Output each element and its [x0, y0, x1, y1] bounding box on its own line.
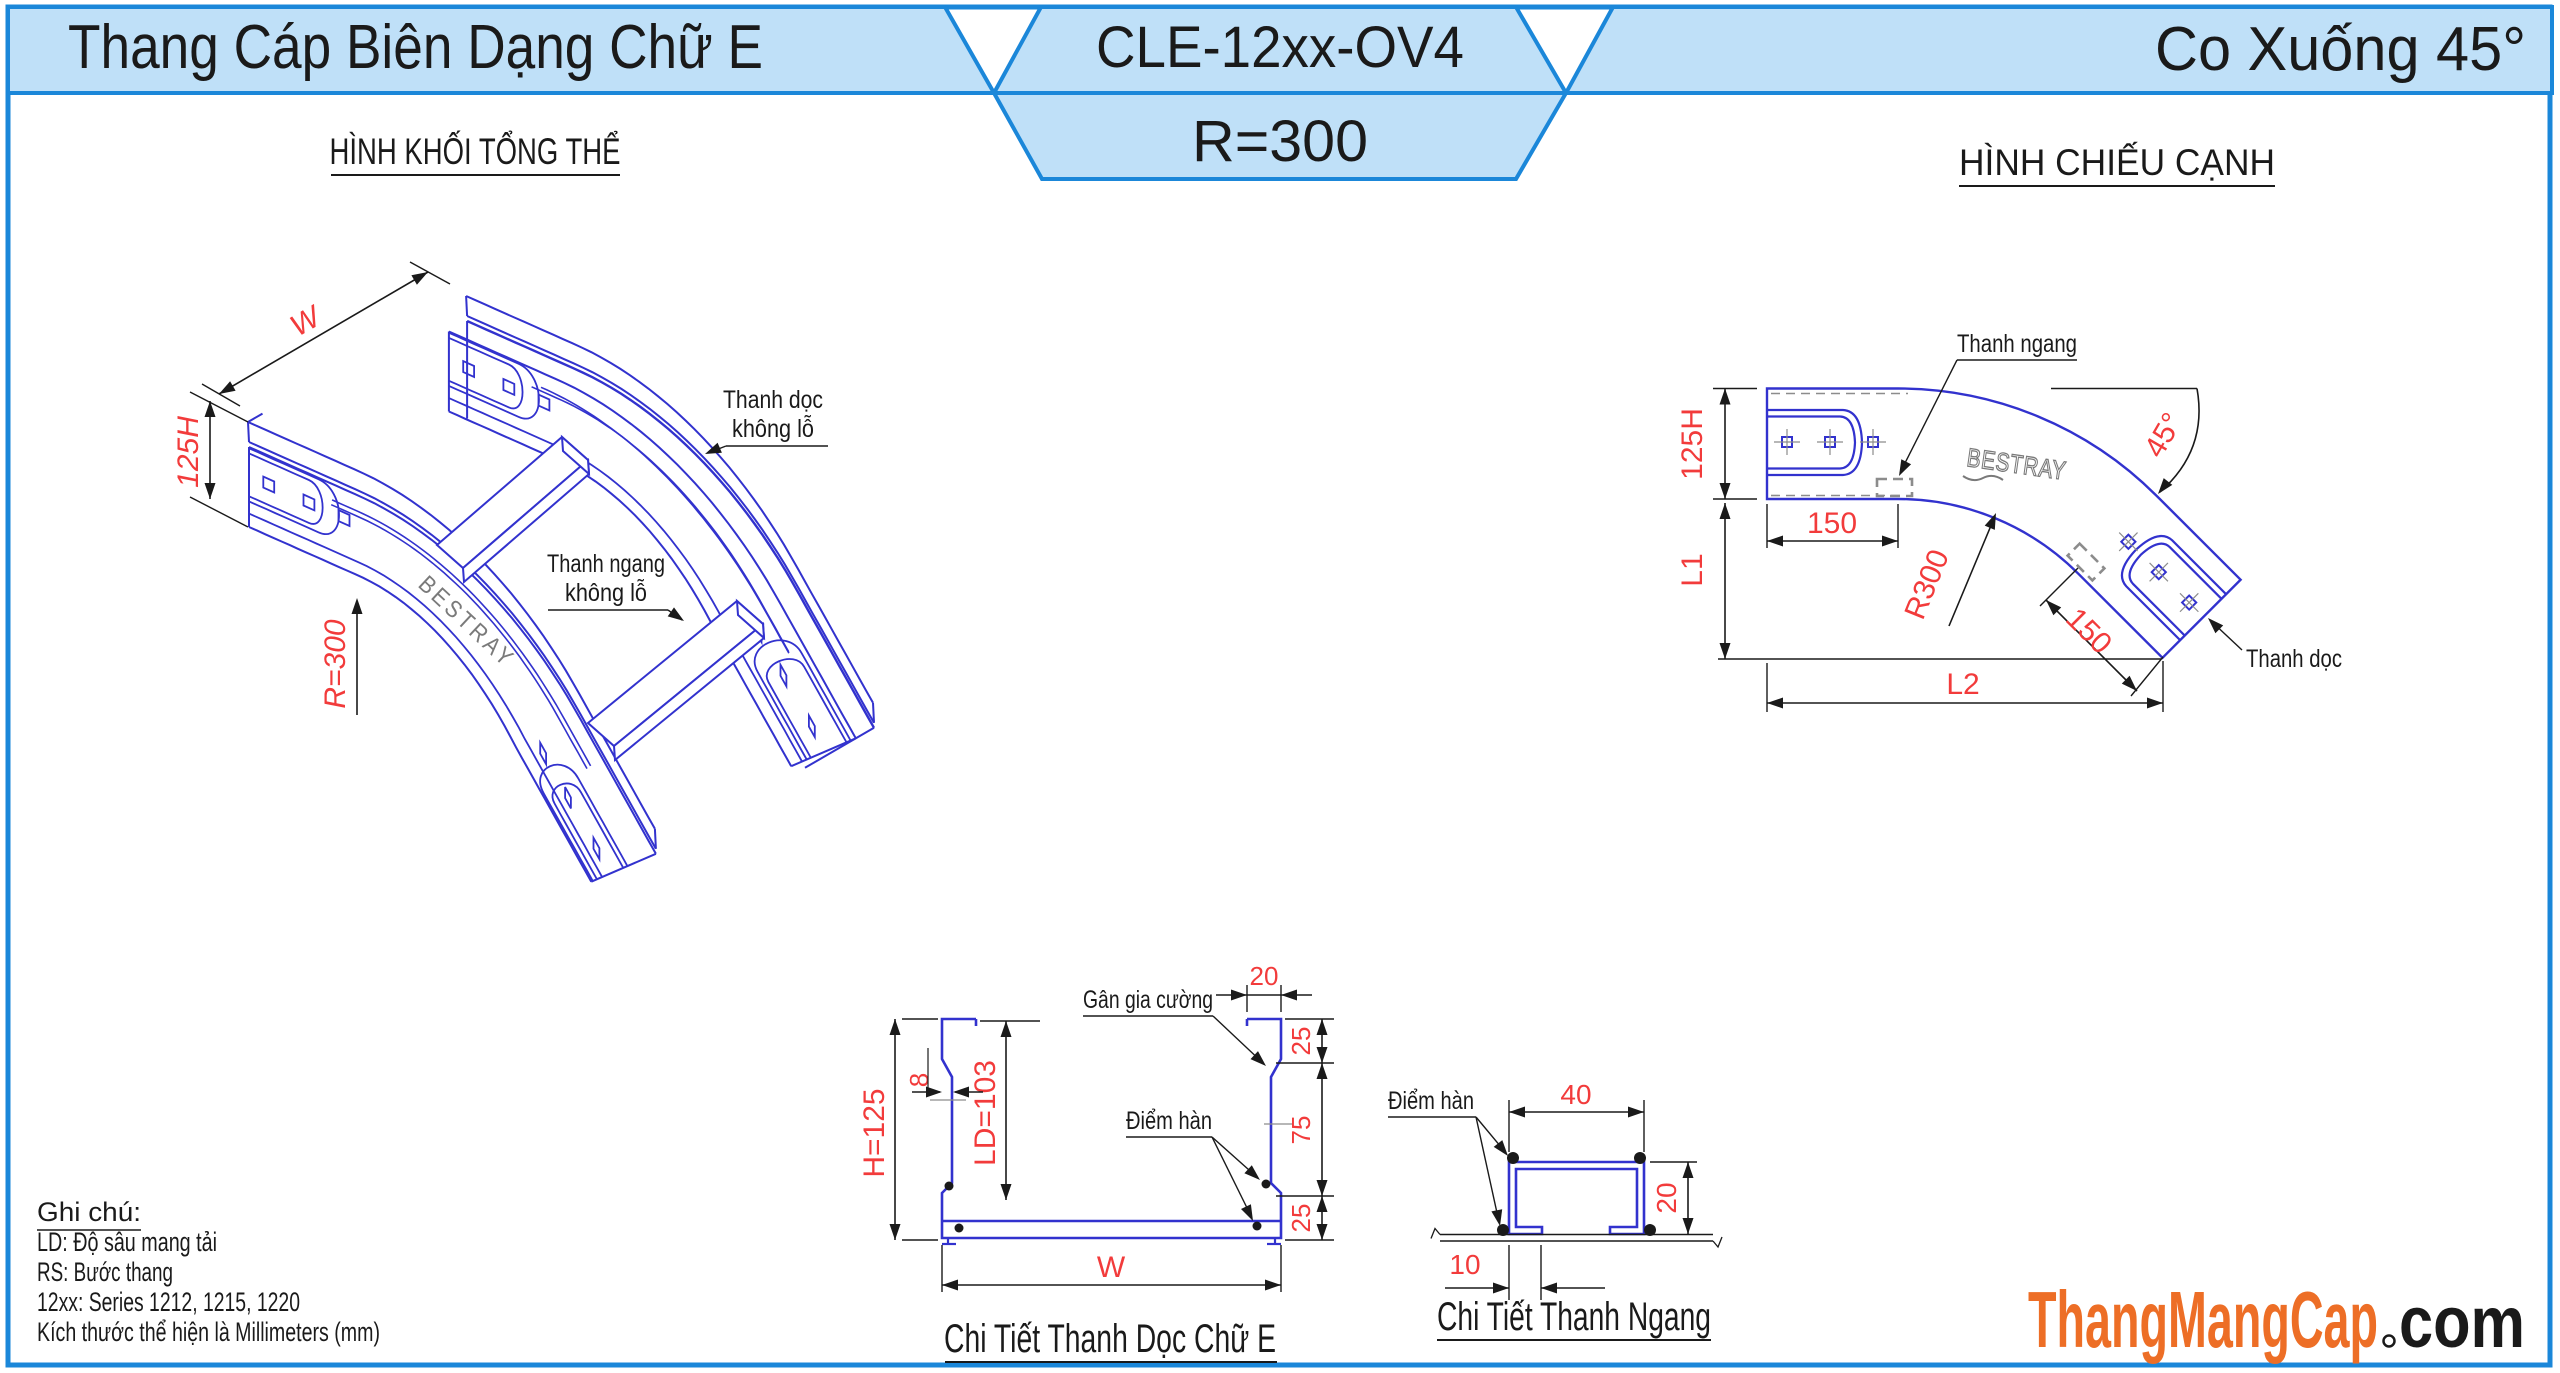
svg-text:Thanh ngang: Thanh ngang [1957, 330, 2077, 358]
svg-text:Ghi chú:: Ghi chú: [37, 1197, 141, 1227]
svg-text:10: 10 [1449, 1249, 1480, 1280]
svg-text:125H: 125H [1676, 408, 1709, 480]
svg-text:20: 20 [1651, 1182, 1682, 1213]
svg-text:25: 25 [1286, 1204, 1316, 1233]
svg-text:Điểm hàn: Điểm hàn [1126, 1107, 1212, 1135]
svg-text:L2: L2 [1946, 668, 1979, 701]
svg-text:LD=103: LD=103 [969, 1060, 1002, 1166]
svg-text:Thang Cáp Biên Dạng Chữ E: Thang Cáp Biên Dạng Chữ E [68, 13, 763, 82]
svg-text:ThangMangCap: ThangMangCap [2028, 1275, 2378, 1364]
svg-text:Chi Tiết Thanh Dọc Chữ E: Chi Tiết Thanh Dọc Chữ E [944, 1317, 1276, 1361]
svg-text:LD: Độ sâu mang tải: LD: Độ sâu mang tải [37, 1227, 217, 1257]
svg-text:HÌNH KHỐI TỔNG THỂ: HÌNH KHỐI TỔNG THỂ [330, 129, 621, 172]
svg-text:R=300: R=300 [319, 619, 352, 709]
svg-text:RS: Bước thang: RS: Bước thang [37, 1257, 173, 1287]
svg-text:HÌNH CHIẾU CẠNH: HÌNH CHIẾU CẠNH [1959, 142, 2275, 183]
svg-text:không lỗ: không lỗ [732, 414, 814, 443]
svg-text:125H: 125H [172, 416, 205, 488]
svg-text:CLE-12xx-OV4: CLE-12xx-OV4 [1096, 15, 1464, 80]
svg-text:L1: L1 [1676, 553, 1709, 586]
svg-text:8: 8 [904, 1073, 934, 1087]
svg-text:R=300: R=300 [1192, 109, 1368, 174]
svg-text:Thanh ngang: Thanh ngang [547, 550, 665, 578]
svg-text:40: 40 [1560, 1079, 1591, 1110]
svg-text:75: 75 [1286, 1116, 1316, 1145]
svg-text:Kích thước thể hiện là Millime: Kích thước thể hiện là Millimeters (mm) [37, 1317, 380, 1347]
svg-text:150: 150 [1807, 507, 1857, 540]
svg-text:Co Xuống 45°: Co Xuống 45° [2155, 15, 2526, 84]
svg-text:Chi Tiết Thanh Ngang: Chi Tiết Thanh Ngang [1437, 1295, 1711, 1339]
svg-text:20: 20 [1250, 961, 1279, 991]
svg-text:Thanh dọc: Thanh dọc [2246, 645, 2342, 673]
svg-text:Gân gia cường: Gân gia cường [1083, 986, 1213, 1014]
svg-text:12xx: Series 1212, 1215, 1220: 12xx: Series 1212, 1215, 1220 [37, 1287, 300, 1317]
svg-text:W: W [1097, 1251, 1126, 1284]
svg-text:com: com [2399, 1283, 2525, 1363]
svg-text:25: 25 [1286, 1027, 1316, 1056]
svg-text:H=125: H=125 [858, 1088, 891, 1177]
svg-text:không lỗ: không lỗ [565, 578, 647, 607]
svg-text:Điểm hàn: Điểm hàn [1388, 1087, 1474, 1115]
svg-text:Thanh dọc: Thanh dọc [723, 386, 823, 414]
